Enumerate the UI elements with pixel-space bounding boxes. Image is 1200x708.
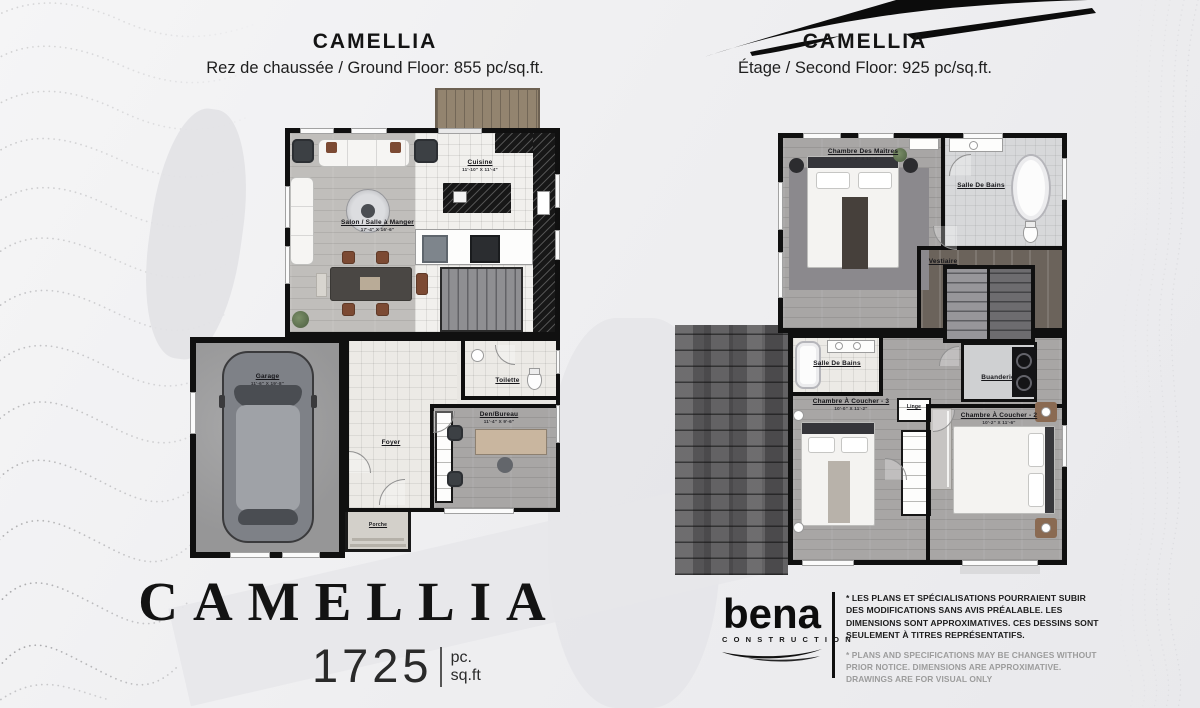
roof-shingles — [675, 325, 788, 575]
ground-floor-plan: Salon / Salle à Manger 17'-4" X 16'-6" C… — [188, 88, 563, 558]
dresser — [909, 138, 939, 150]
second-floor-subtitle: Étage / Second Floor: 925 pc/sq.ft. — [655, 59, 1075, 78]
area-unit-en: sq.ft — [451, 667, 481, 684]
garage-window — [190, 392, 196, 434]
desk-chair — [497, 457, 513, 473]
window — [858, 133, 894, 139]
toilet — [1023, 224, 1038, 243]
flyer-page: { "header_left": { "title": "CAMELLIA", … — [0, 0, 1200, 708]
stairs-second — [943, 265, 1035, 343]
car-mirror — [219, 395, 225, 408]
bathroom-sink — [853, 342, 861, 350]
window — [444, 508, 514, 514]
pillow — [858, 172, 892, 189]
headboard — [808, 157, 898, 168]
island-sink — [453, 191, 467, 203]
window — [556, 350, 560, 374]
kitchen-counter-right — [533, 133, 555, 332]
room-label-porche: Porche — [348, 522, 408, 528]
washer-dryer — [1012, 347, 1036, 397]
patio-door — [438, 128, 482, 134]
pillow — [841, 437, 868, 453]
porch-step — [352, 538, 404, 541]
total-area: 1725 pc. sq.ft — [312, 638, 481, 693]
window — [778, 252, 783, 298]
plant — [292, 311, 309, 328]
footer-divider — [832, 592, 835, 678]
ottoman — [447, 471, 463, 487]
wall-sconce — [793, 410, 804, 421]
window — [556, 405, 560, 443]
ottoman — [447, 425, 463, 441]
window — [778, 182, 783, 230]
bed-runner — [828, 461, 850, 523]
dining-bench — [316, 273, 327, 297]
foyer-den-block: Toilette Den/Bureau 11'-4" X 9'-6" Foyer — [345, 337, 560, 512]
ground-floor-header: CAMELLIA Rez de chaussée / Ground Floor:… — [140, 30, 610, 78]
armchair — [414, 139, 438, 163]
car-windshield — [234, 385, 302, 407]
nightstand — [1035, 402, 1057, 422]
bathtub-rect — [795, 341, 821, 389]
dining-chair — [376, 303, 389, 316]
window — [963, 133, 1003, 139]
coffee-table-center — [361, 204, 375, 218]
window — [1062, 425, 1067, 467]
window — [1062, 158, 1067, 200]
lower-block: Salle De Bains Chambre À Coucher - 3 10'… — [788, 333, 1067, 565]
garage-window — [282, 552, 320, 558]
window — [802, 560, 854, 566]
bena-logo-swoosh — [720, 646, 824, 662]
disclaimer: * LES PLANS ET SPÉCIALISATIONS POURRAIEN… — [846, 592, 1104, 685]
window — [300, 128, 334, 134]
toilet — [527, 371, 542, 390]
area-units: pc. sq.ft — [451, 647, 481, 684]
nightstand — [789, 158, 804, 173]
nightstand — [903, 158, 918, 173]
pillow — [816, 172, 850, 189]
bathtub-oval — [1011, 154, 1051, 222]
sofa-pillow — [390, 142, 401, 153]
laundry-room — [961, 342, 1037, 402]
bathroom-sink — [471, 349, 484, 362]
plant — [893, 148, 907, 162]
balcony-ledge — [960, 566, 1040, 574]
car-mirror — [311, 395, 317, 408]
pillow — [808, 437, 835, 453]
bathroom-sink — [969, 141, 978, 150]
headboard — [802, 423, 874, 434]
area-unit-fr: pc. — [451, 649, 481, 666]
pillow — [1028, 433, 1044, 467]
sofa-pillow — [326, 142, 337, 153]
bedroom2-bed — [953, 426, 1055, 514]
window — [803, 133, 841, 139]
garage-block: Garage 11'-6" X 19'-8" — [190, 337, 345, 558]
table-runner — [360, 277, 380, 290]
window — [351, 128, 387, 134]
car-rear-glass — [238, 509, 298, 525]
desk — [475, 429, 547, 455]
stove — [470, 235, 500, 263]
bena-logo-text: bena — [720, 596, 824, 632]
chaise — [290, 177, 314, 265]
bedroom3-bed — [801, 422, 875, 526]
window — [962, 560, 1038, 566]
window — [285, 246, 290, 284]
bed-runner — [842, 197, 868, 269]
dishwasher — [422, 235, 448, 263]
total-area-value: 1725 — [312, 638, 433, 693]
stairs-ground — [440, 267, 523, 332]
headboard — [1045, 427, 1054, 513]
dining-chair — [376, 251, 389, 264]
kitchen-counter-corner — [495, 133, 533, 153]
footer: bena CONSTRUCTION * LES PLANS ET SPÉCIAL… — [720, 592, 1110, 684]
area-divider — [440, 647, 442, 687]
armchair — [292, 139, 314, 163]
window — [555, 230, 560, 260]
pillow — [1028, 473, 1044, 507]
disclaimer-french: * LES PLANS ET SPÉCIALISATIONS POURRAIEN… — [846, 592, 1104, 642]
bena-logo-subtext: CONSTRUCTION — [722, 635, 824, 644]
disclaimer-english: * PLANS AND SPECIFICATIONS MAY BE CHANGE… — [846, 649, 1104, 686]
porch-step — [350, 544, 406, 547]
kitchen-sink — [537, 191, 550, 215]
second-floor-plan: Chambre Des Maîtres 13'-2" X 13'-0" Sall… — [675, 130, 1070, 575]
ground-floor-title: CAMELLIA — [140, 30, 610, 54]
window — [285, 186, 290, 228]
dining-chair — [416, 273, 428, 295]
second-floor-title: CAMELLIA — [655, 30, 1075, 54]
model-name-large: CAMELLIA — [100, 570, 585, 633]
car — [222, 351, 314, 543]
room-name: Porche — [348, 522, 408, 528]
dining-chair — [342, 303, 355, 316]
ground-floor-subtitle: Rez de chaussée / Ground Floor: 855 pc/s… — [140, 59, 610, 78]
dining-chair — [342, 251, 355, 264]
bena-logo: bena CONSTRUCTION — [720, 596, 824, 667]
master-bed — [807, 156, 899, 268]
bathroom-sink — [835, 342, 843, 350]
nightstand — [1035, 518, 1057, 538]
window — [555, 174, 560, 208]
wall-sconce — [793, 522, 804, 533]
porch: Porche — [345, 512, 411, 552]
car-roof — [236, 405, 300, 511]
garage-window — [230, 552, 270, 558]
second-floor-header: CAMELLIA Étage / Second Floor: 925 pc/sq… — [655, 30, 1075, 78]
main-block: Salon / Salle à Manger 17'-4" X 16'-6" C… — [285, 128, 560, 337]
